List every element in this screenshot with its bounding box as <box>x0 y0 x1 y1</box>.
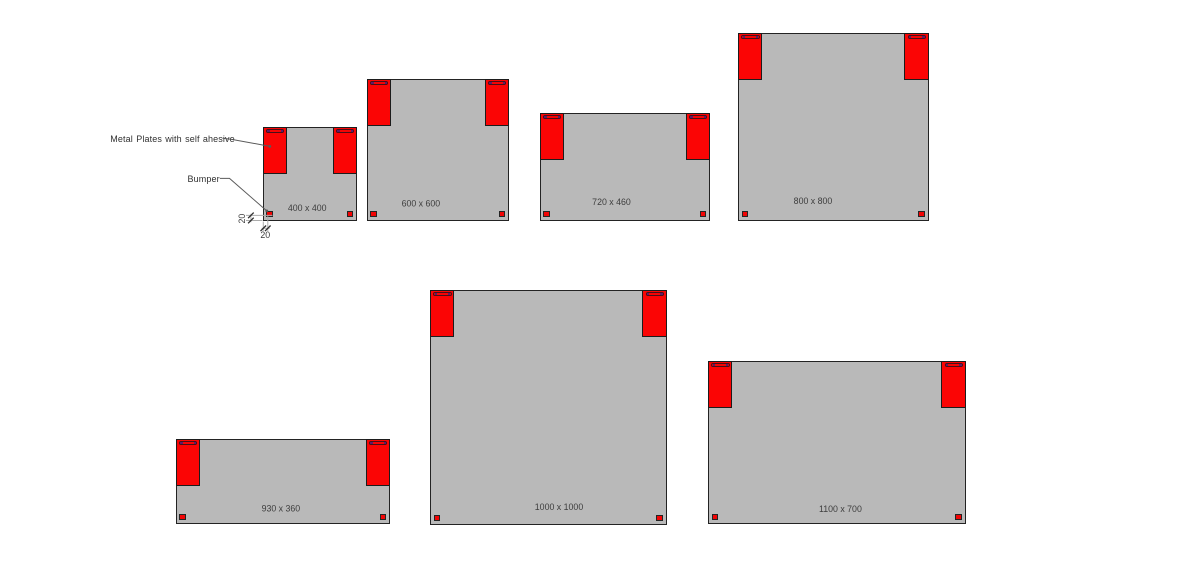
svg-text:930 x 360: 930 x 360 <box>262 504 301 514</box>
svg-text:720 x 460: 720 x 460 <box>592 197 631 207</box>
svg-text:800 x 800: 800 x 800 <box>794 196 833 206</box>
svg-text:1000 x 1000: 1000 x 1000 <box>535 502 584 512</box>
svg-text:400 x 400: 400 x 400 <box>288 203 327 213</box>
svg-text:1100 x 700: 1100 x 700 <box>819 504 862 514</box>
svg-text:Bumper: Bumper <box>188 174 220 184</box>
svg-text:20: 20 <box>260 230 270 240</box>
svg-text:600 x 600: 600 x 600 <box>402 198 441 208</box>
svg-text:20: 20 <box>237 214 247 224</box>
svg-text:Metal Plates with self ahesive: Metal Plates with self ahesive <box>110 134 234 144</box>
